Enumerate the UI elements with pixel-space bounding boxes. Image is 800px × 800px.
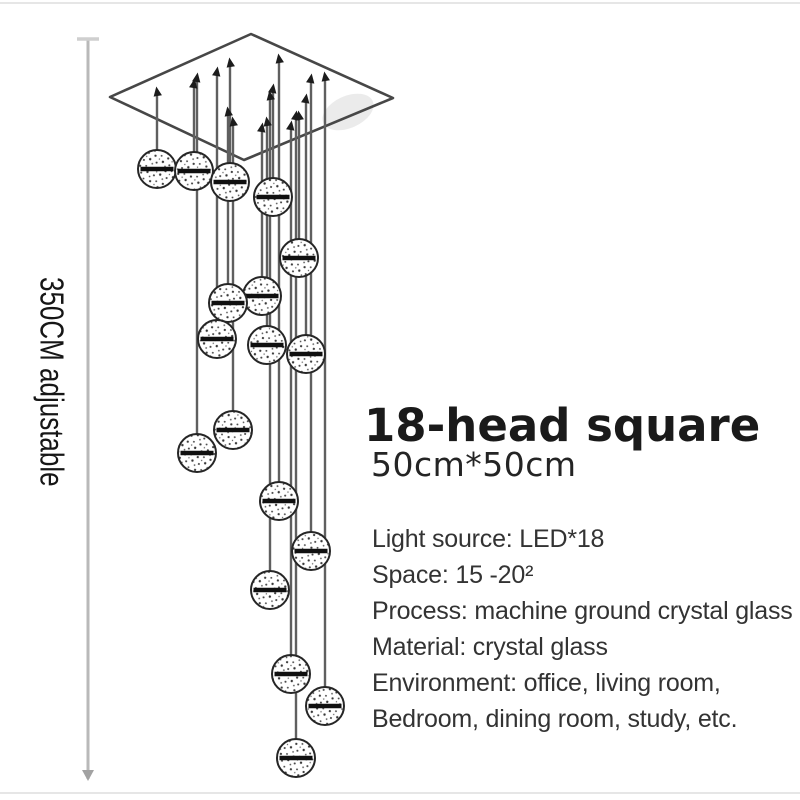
wire-pin — [274, 53, 284, 64]
crystal-sphere — [175, 152, 213, 190]
wire-pin — [225, 57, 235, 68]
wire-pin — [301, 93, 311, 104]
spec-line: Material: crystal glass — [372, 629, 793, 665]
product-size: 50cm*50cm — [371, 445, 577, 484]
crystal-sphere — [272, 655, 310, 693]
spec-line: Space: 15 -20² — [372, 557, 793, 593]
crystal-sphere — [280, 239, 318, 277]
crystal-sphere — [277, 739, 315, 777]
bottom-edge-line — [0, 792, 800, 794]
crystal-sphere — [211, 163, 249, 201]
crystal-sphere — [243, 277, 281, 315]
wire-pin — [152, 86, 162, 97]
crystal-sphere — [287, 335, 325, 373]
crystal-sphere — [306, 687, 344, 725]
crystal-sphere — [251, 571, 289, 609]
product-image-canvas: 350CM adjustable 18-head square 50cm*50c… — [0, 0, 800, 800]
crystal-sphere — [248, 326, 286, 364]
crystal-sphere — [138, 150, 176, 188]
spec-line: Process: machine ground crystal glass — [372, 593, 793, 629]
spec-line: Bedroom, dining room, study, etc. — [372, 701, 793, 737]
measure-line-bottom-arrow — [82, 770, 94, 781]
wire-pin — [223, 106, 233, 117]
wire-pin — [192, 72, 202, 83]
crystal-sphere — [214, 411, 252, 449]
crystal-sphere — [209, 284, 247, 322]
measure-label: 350CM adjustable — [31, 277, 71, 487]
crystal-sphere — [292, 532, 330, 570]
crystal-sphere — [254, 178, 292, 216]
wire-pin — [320, 71, 330, 82]
spec-list: Light source: LED*18 Space: 15 -20² Proc… — [372, 521, 793, 737]
crystal-sphere — [260, 482, 298, 520]
spec-line: Light source: LED*18 — [372, 521, 793, 557]
spec-line: Environment: office, living room, — [372, 665, 793, 701]
wire-pin — [286, 120, 296, 131]
wire-pin — [212, 66, 222, 77]
crystal-sphere — [198, 320, 236, 358]
wire-pin — [306, 73, 316, 84]
crystal-sphere — [178, 434, 216, 472]
top-edge-line — [0, 2, 800, 4]
